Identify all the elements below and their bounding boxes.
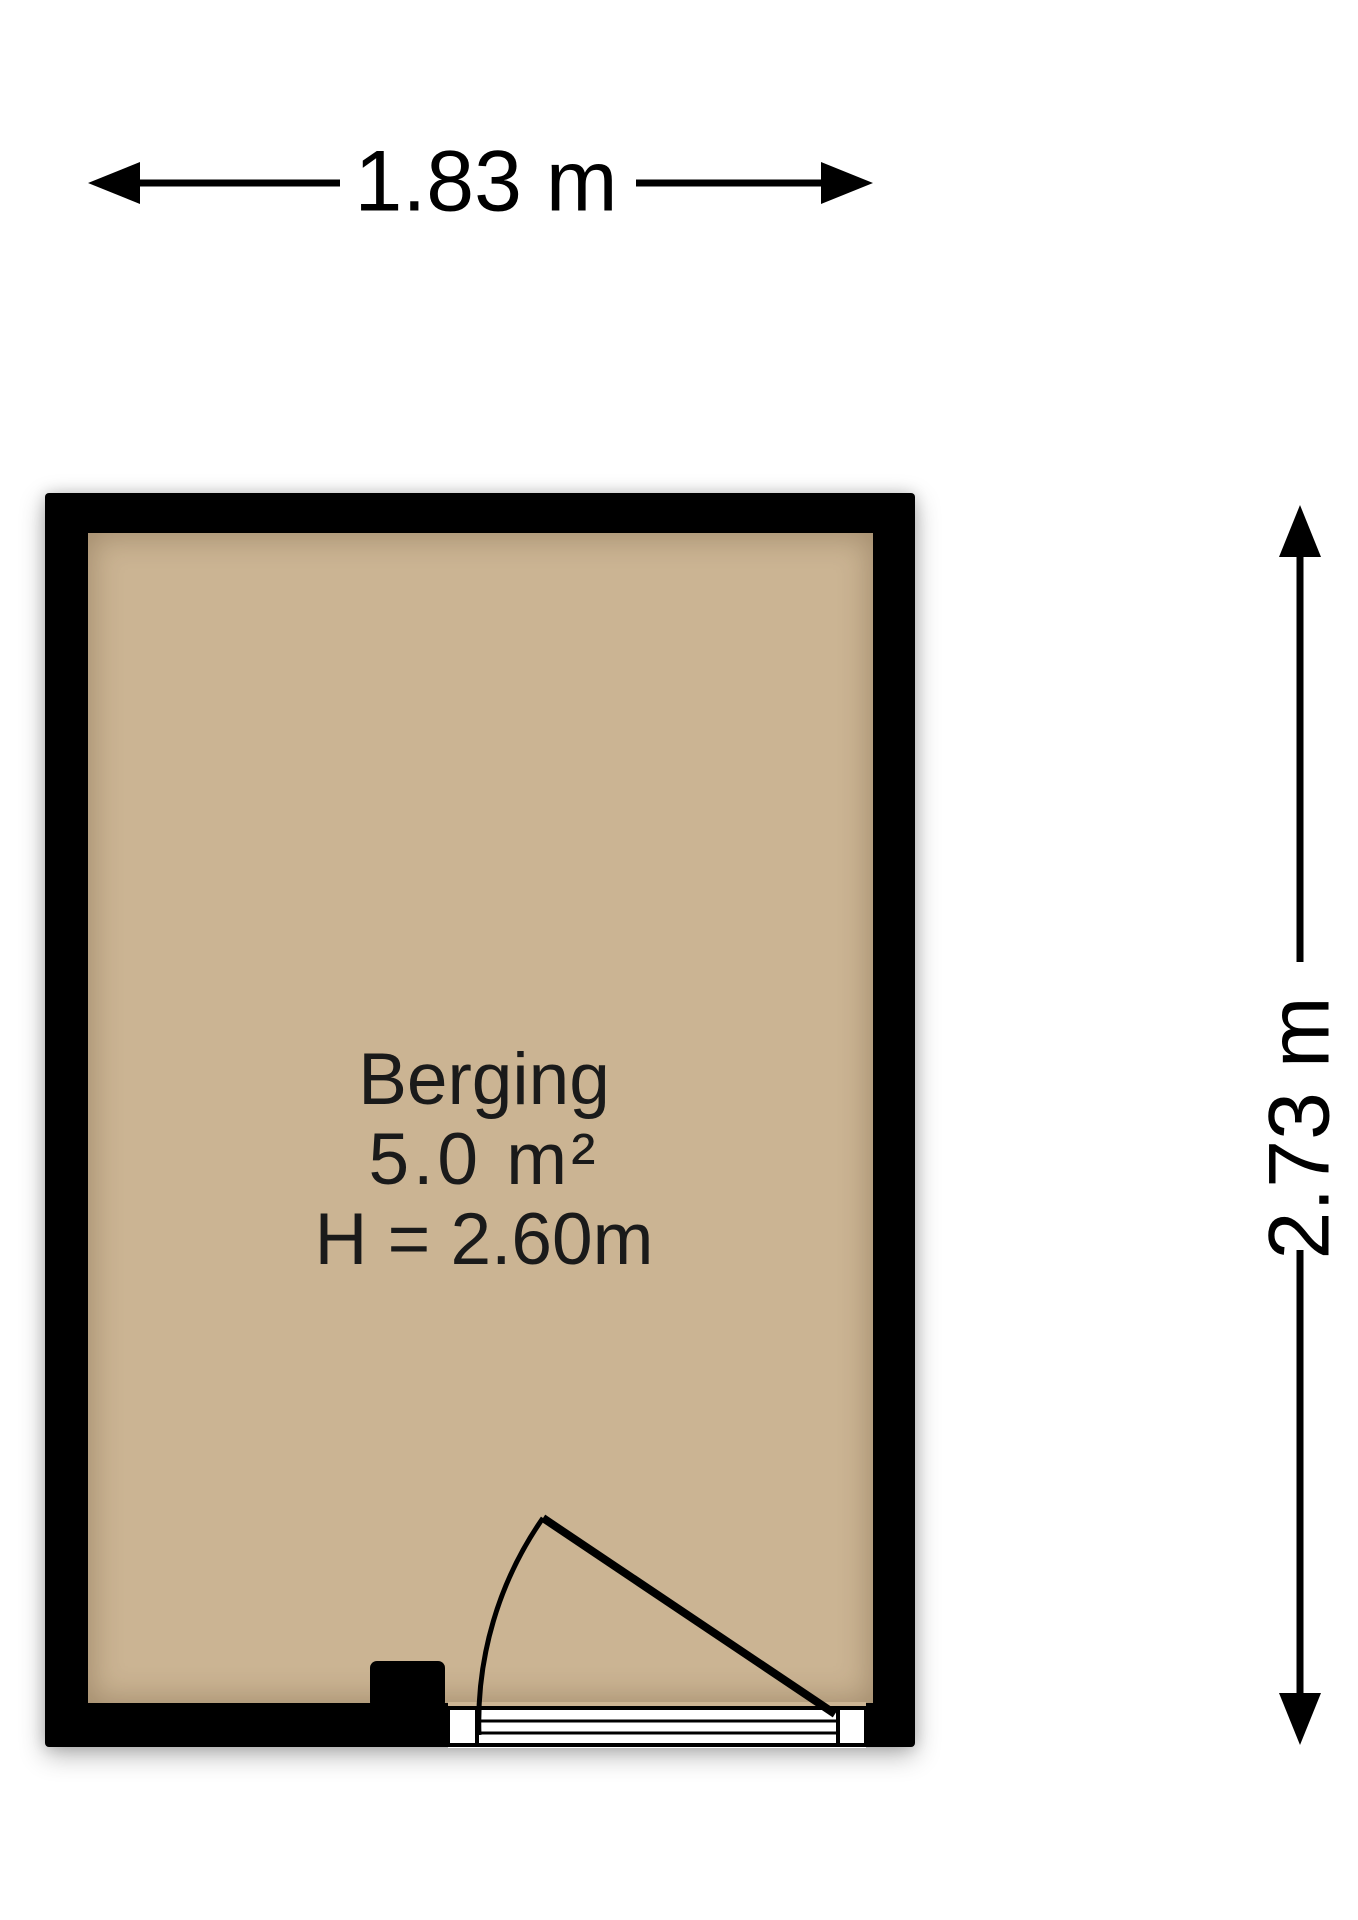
arrow-left-icon xyxy=(88,162,140,204)
room-label-block: Berging 5.0 m² H = 2.60m xyxy=(315,1040,654,1280)
arrow-up-icon xyxy=(1279,505,1321,557)
width-dimension-label: 1.83 m xyxy=(355,133,618,232)
arrow-down-icon xyxy=(1279,1693,1321,1745)
room-area: 5.0 m² xyxy=(315,1120,654,1200)
arrow-right-icon xyxy=(821,162,873,204)
room-ceiling-height: H = 2.60m xyxy=(315,1200,654,1280)
floorplan-canvas: Berging 5.0 m² H = 2.60m 1.83 m 2.73 m xyxy=(0,0,1358,1920)
room-name: Berging xyxy=(315,1040,654,1120)
height-dimension-label: 2.73 m xyxy=(1251,997,1350,1260)
